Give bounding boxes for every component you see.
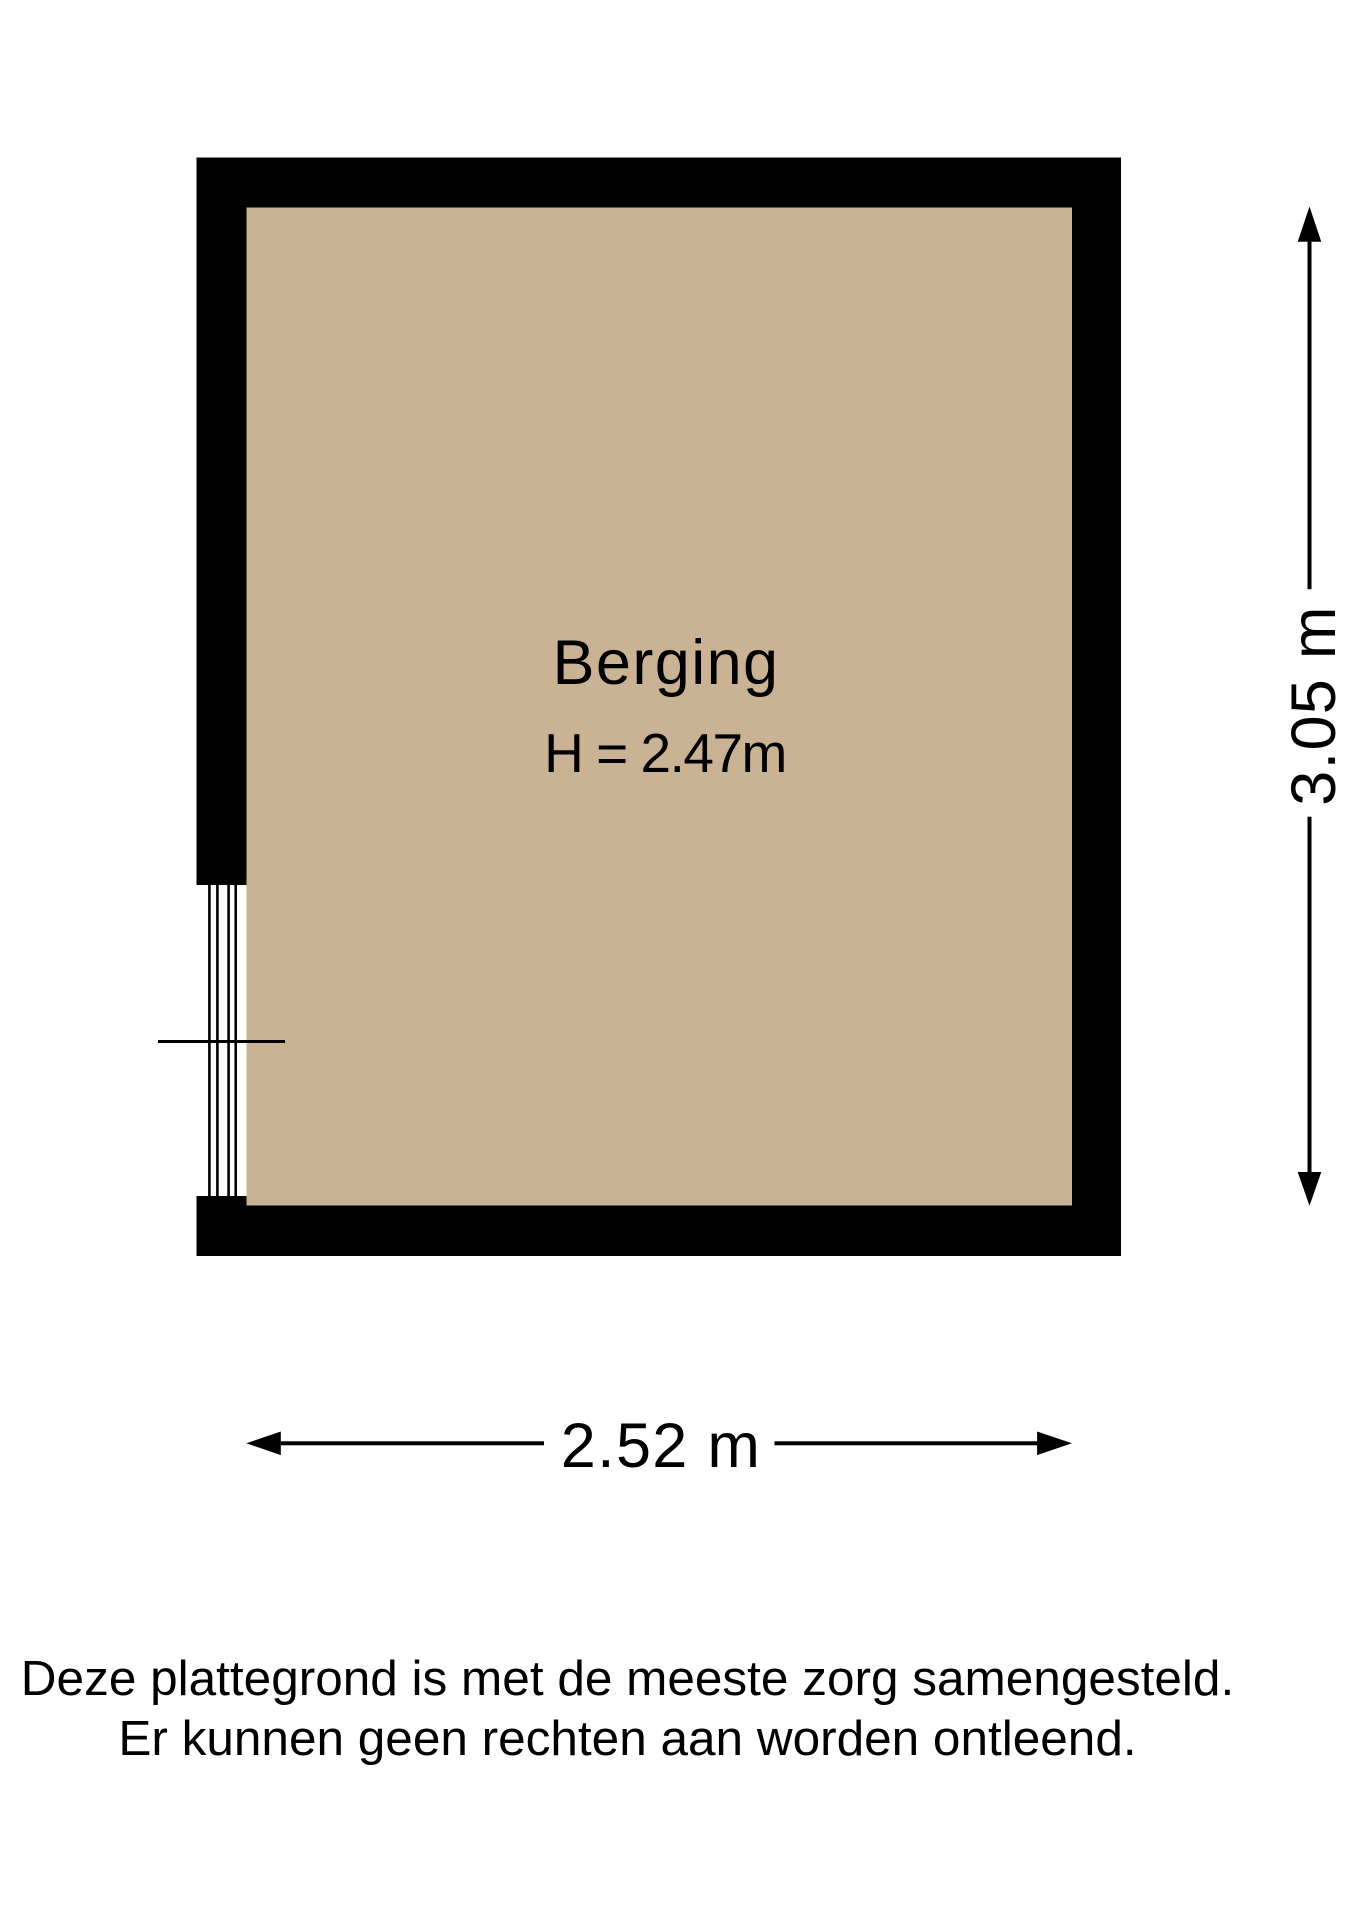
svg-text:H = 2.47m: H = 2.47m bbox=[544, 722, 786, 784]
svg-text:3.05 m: 3.05 m bbox=[1279, 605, 1349, 805]
svg-text:Berging: Berging bbox=[553, 628, 780, 698]
svg-text:Er kunnen geen rechten aan wor: Er kunnen geen rechten aan worden ontlee… bbox=[118, 1711, 1136, 1766]
svg-text:2.52 m: 2.52 m bbox=[561, 1411, 761, 1481]
svg-text:Deze plattegrond is met de mee: Deze plattegrond is met de meeste zorg s… bbox=[21, 1651, 1234, 1706]
